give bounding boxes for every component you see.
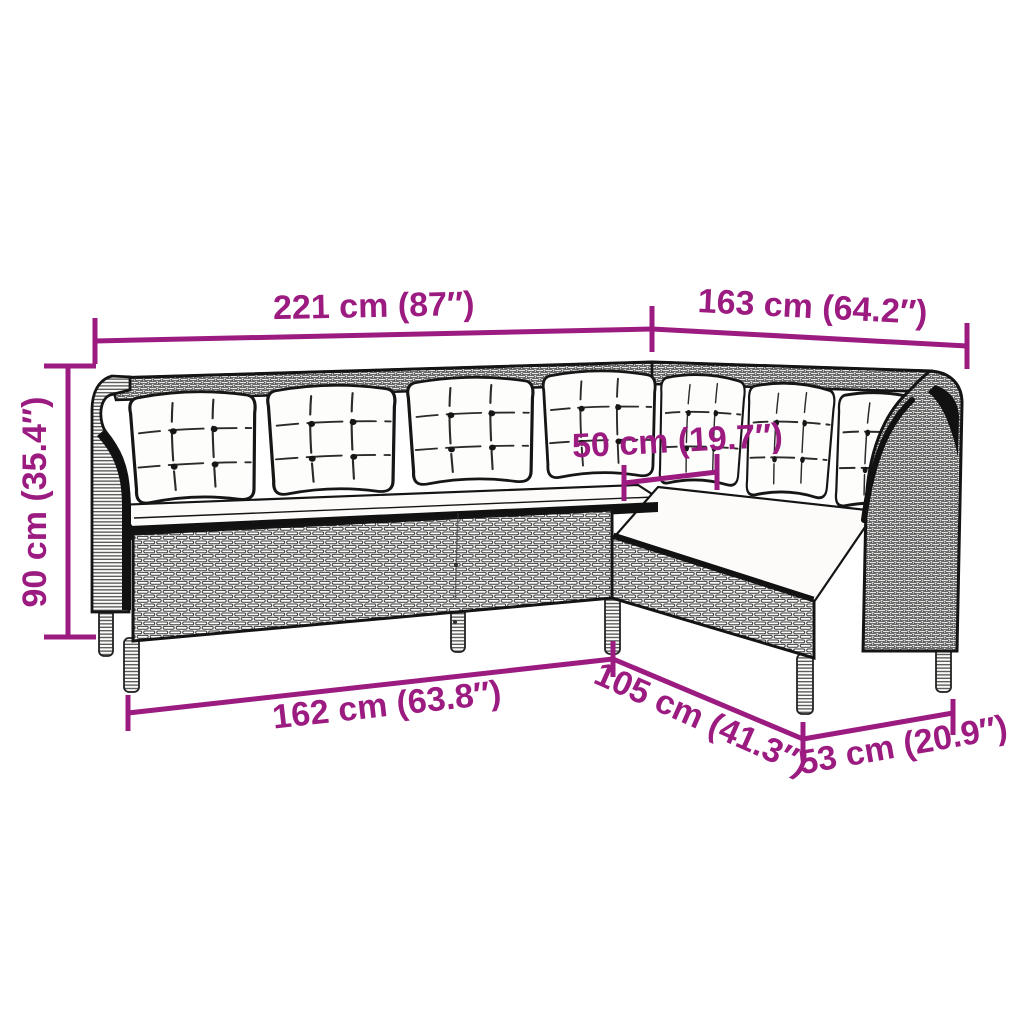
dimension-front-depth-diagonal: 105 cm (41.3″) <box>589 655 814 783</box>
dimension-back-width-left: 221 cm (87″) <box>95 285 652 364</box>
sofa-leg <box>797 654 813 714</box>
dimension-label: 221 cm (87″) <box>273 285 475 327</box>
sofa-leg <box>451 608 465 652</box>
dimension-label: 163 cm (64.2″) <box>697 282 929 332</box>
dimension-overall-height: 90 cm (35.4″) <box>16 366 96 637</box>
sofa-illustration <box>92 362 962 714</box>
base-front-left <box>133 510 612 641</box>
back-pillow <box>267 384 396 494</box>
sofa-dimension-illustration: 221 cm (87″) 163 cm (64.2″) 90 cm (35.4″… <box>0 0 1024 1024</box>
sofa-leg <box>99 606 113 656</box>
dimension-back-width-right: 163 cm (64.2″) <box>652 282 967 369</box>
sofa-leg <box>124 638 139 692</box>
dimension-label: 105 cm (41.3″) <box>589 655 814 783</box>
dimension-front-width-right: 53 cm (20.9″) <box>796 699 1010 782</box>
dimension-label: 90 cm (35.4″) <box>16 397 54 608</box>
back-pillow <box>129 390 257 503</box>
dimension-line <box>95 329 652 341</box>
product-dimension-diagram: 221 cm (87″) 163 cm (64.2″) 90 cm (35.4″… <box>0 0 1024 1024</box>
sofa-leg <box>936 648 951 692</box>
back-pillow <box>407 376 534 484</box>
dimension-front-width-left: 162 cm (63.8″) <box>128 641 613 737</box>
